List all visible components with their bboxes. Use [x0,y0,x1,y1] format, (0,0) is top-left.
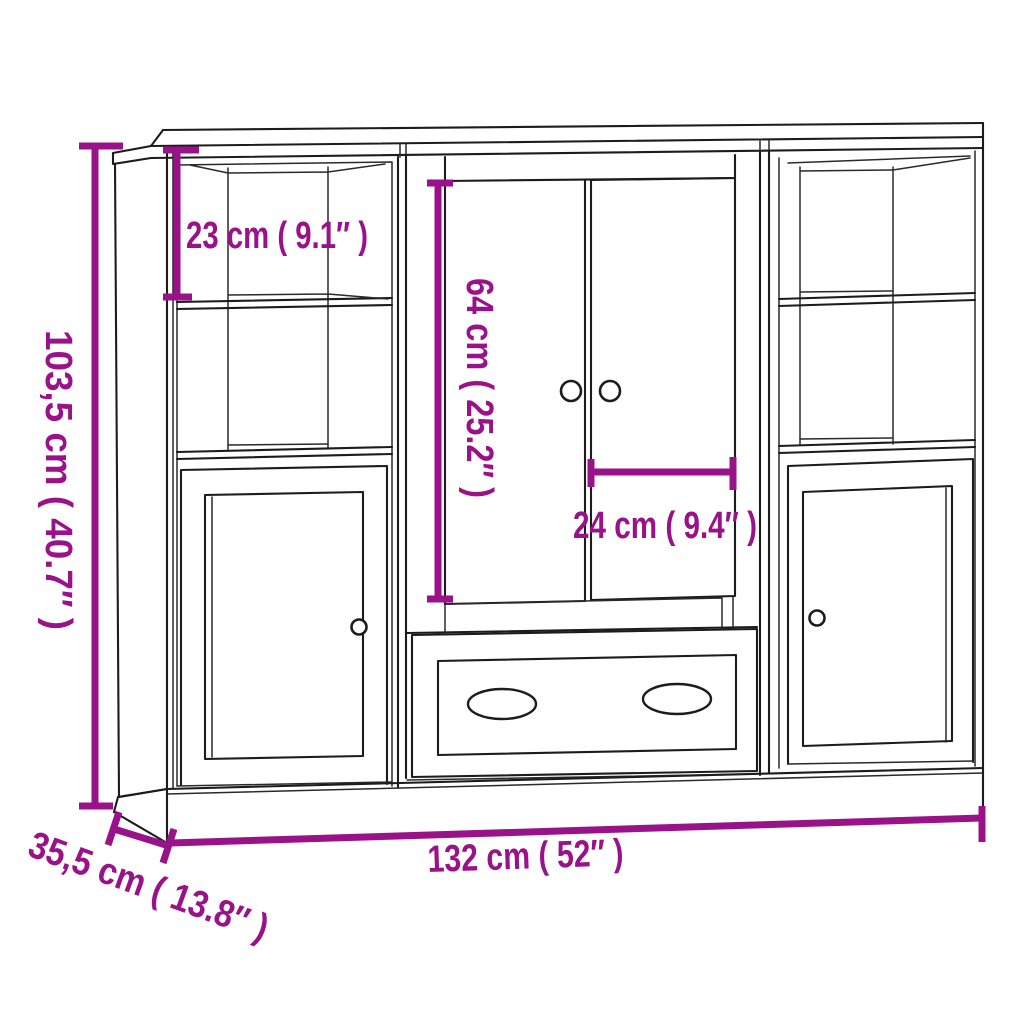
right-unit-door [788,459,973,764]
top-front-edge [151,137,983,146]
shelf-front-edges [779,440,975,453]
top-back-edge [163,123,983,130]
shelf-front-edges [177,447,392,459]
dim-132-label: 132 cm ( 52″ ) [427,832,624,881]
shelf-front-edges [779,293,975,306]
dim-64-label: 64 cm ( 25.2″ ) [458,278,500,498]
left-unit-shelf-2 [177,444,392,459]
center-right-joint [760,151,769,775]
door-knob [810,611,825,626]
right-unit-bottom-sill [788,761,973,764]
left-door-knob [561,381,581,401]
side-outer-edge [115,164,119,797]
shelf-back-edge [800,291,893,292]
drawer-handle-right [643,684,711,714]
right-unit [779,148,983,768]
left-unit-door [181,466,387,785]
top-front-bottom-edge [151,148,983,158]
shelf-front-edges [177,298,392,309]
top-board [113,123,983,164]
dim-23-label: 23 cm ( 9.1″ ) [186,215,368,257]
dim-24-label: 24 cm ( 9.4″ ) [573,505,757,547]
right-unit-shelf-1 [779,291,975,306]
highboard-dimension-diagram: 103,5 cm ( 40.7″ ) 23 cm ( 9.1″ ) 64 cm … [0,0,1024,1024]
shelf-back-edge [800,438,893,439]
dim-height-label: 103,5 cm ( 40.7″ ) [37,330,79,630]
drawer-handle-left [468,689,536,719]
dim-door-height: 64 cm ( 25.2″ ) [427,183,500,599]
dim-width: 132 cm ( 52″ ) [170,806,982,881]
left-unit-shelf-1 [177,294,392,309]
shelf-back-edge [228,444,328,445]
door-knob [352,620,367,635]
right-unit-shelf-2 [779,438,975,453]
dim-depth-line [114,829,169,846]
dim-height: 103,5 cm ( 40.7″ ) [37,146,123,806]
left-side-panel [115,150,173,797]
center-drawer [407,627,757,777]
top-left-corner [151,130,163,146]
right-door-knob [600,381,620,401]
center-top-rail [445,155,735,181]
dim-door-width: 24 cm ( 9.4″ ) [573,457,757,547]
door-panel [205,492,363,759]
dimension-diagram-page: 103,5 cm ( 40.7″ ) 23 cm ( 9.1″ ) 64 cm … [0,0,1024,1024]
